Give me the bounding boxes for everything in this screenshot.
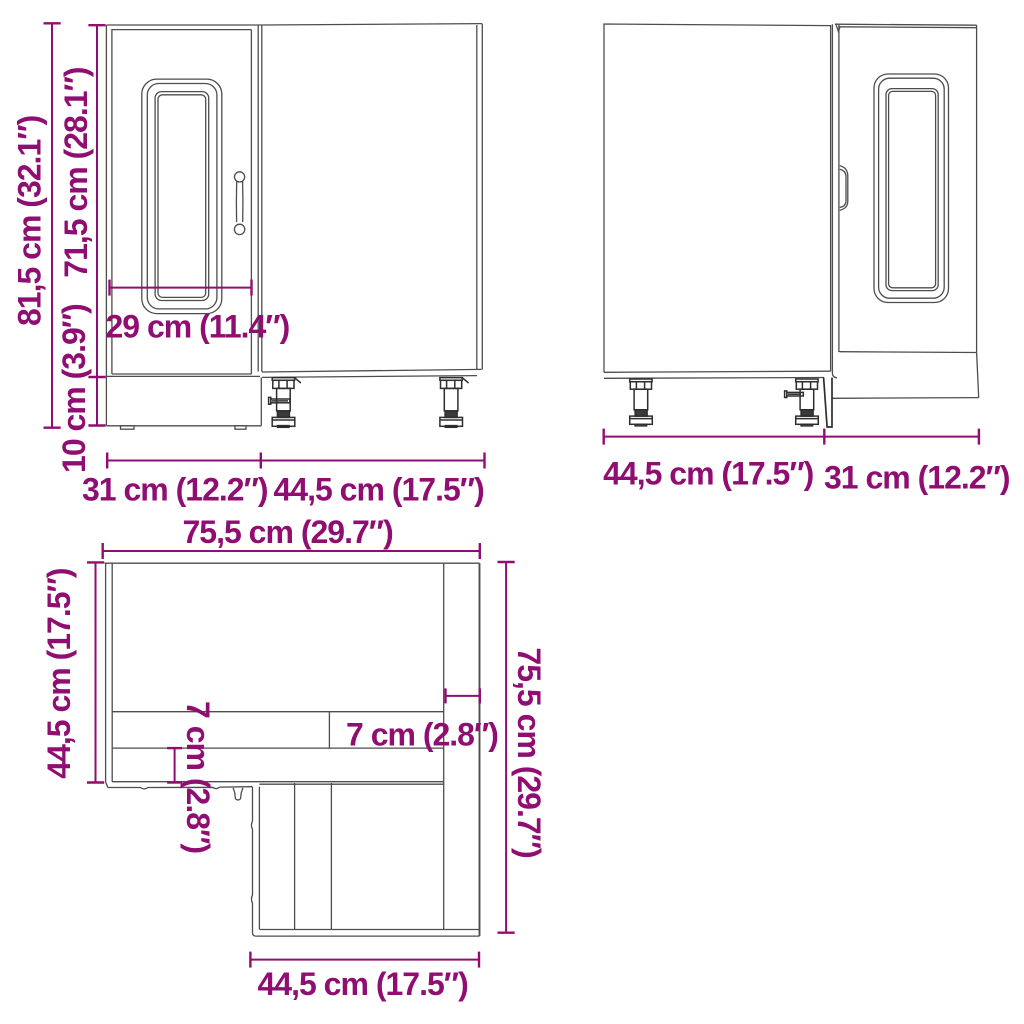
svg-text:44,5 cm (17.5″): 44,5 cm (17.5″) [41,568,77,779]
svg-text:7 cm (2.8″): 7 cm (2.8″) [346,716,498,752]
svg-text:31 cm (12.2″): 31 cm (12.2″) [82,471,268,507]
svg-text:31 cm (12.2″): 31 cm (12.2″) [824,460,1010,496]
svg-text:29 cm (11.4″): 29 cm (11.4″) [106,308,290,344]
svg-text:44,5 cm (17.5″): 44,5 cm (17.5″) [258,966,469,1002]
svg-text:7 cm (2.8″): 7 cm (2.8″) [180,701,216,853]
svg-text:75,5 cm (29.7″): 75,5 cm (29.7″) [511,647,547,858]
svg-text:81,5 cm (32.1″): 81,5 cm (32.1″) [11,115,47,326]
svg-text:75,5 cm (29.7″): 75,5 cm (29.7″) [183,514,394,550]
svg-text:71,5 cm (28.1″): 71,5 cm (28.1″) [58,67,94,278]
svg-text:44,5 cm (17.5″): 44,5 cm (17.5″) [603,456,814,492]
svg-text:44,5 cm (17.5″): 44,5 cm (17.5″) [274,471,485,507]
svg-text:10 cm (3.9″): 10 cm (3.9″) [56,304,92,473]
